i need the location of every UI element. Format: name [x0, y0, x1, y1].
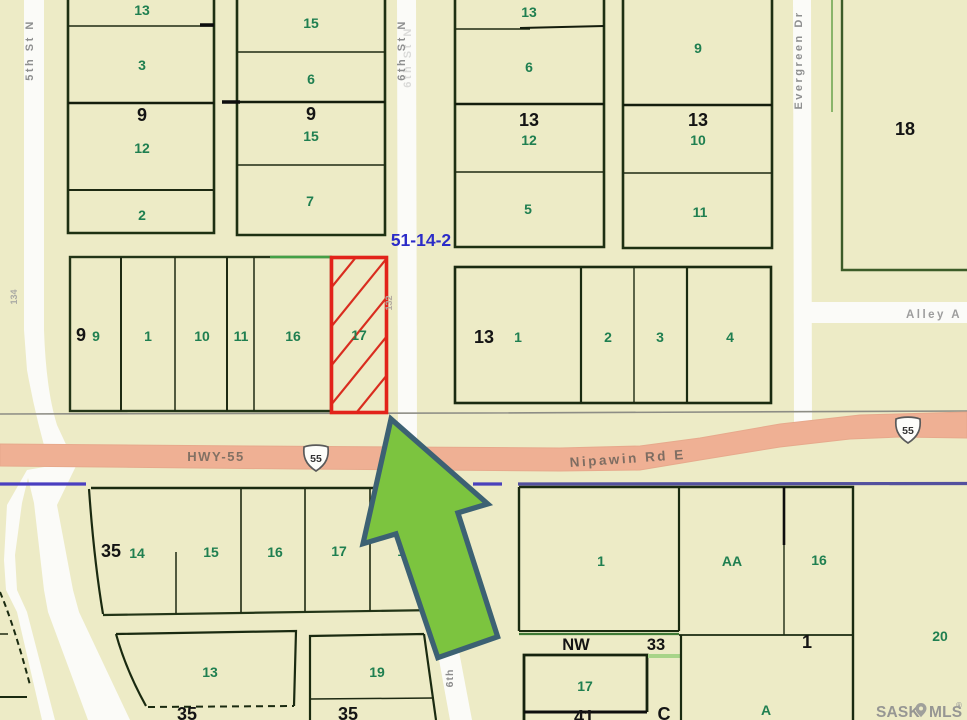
svg-text:17: 17 [331, 543, 347, 559]
svg-text:19: 19 [369, 664, 385, 680]
svg-text:3: 3 [138, 57, 146, 73]
svg-text:13: 13 [202, 664, 218, 680]
svg-text:41: 41 [574, 707, 594, 720]
svg-text:7: 7 [306, 193, 314, 209]
svg-text:11: 11 [693, 204, 708, 220]
svg-text:10: 10 [194, 328, 210, 344]
svg-text:15: 15 [203, 544, 219, 560]
svg-text:20: 20 [932, 628, 948, 644]
svg-text:16: 16 [811, 552, 827, 568]
svg-text:1: 1 [514, 329, 522, 345]
svg-text:6: 6 [525, 59, 533, 75]
svg-text:51-14-2: 51-14-2 [391, 230, 452, 250]
svg-text:33: 33 [647, 636, 665, 654]
svg-text:2: 2 [604, 329, 612, 345]
svg-text:®: ® [956, 701, 962, 710]
svg-text:AA: AA [722, 553, 742, 569]
svg-text:Evergreen Dr: Evergreen Dr [793, 10, 805, 109]
svg-text:13: 13 [519, 110, 539, 130]
svg-text:55: 55 [902, 425, 914, 437]
svg-text:14: 14 [129, 545, 145, 561]
svg-text:35: 35 [101, 541, 121, 561]
svg-text:NW: NW [562, 636, 590, 654]
svg-text:18: 18 [895, 119, 915, 139]
svg-text:5th St N: 5th St N [24, 19, 36, 81]
svg-text:17: 17 [577, 678, 593, 694]
svg-text:17: 17 [351, 327, 367, 343]
svg-text:SASK: SASK [876, 704, 920, 720]
svg-text:35: 35 [338, 704, 358, 720]
svg-text:13: 13 [134, 2, 150, 18]
svg-text:3: 3 [656, 329, 664, 345]
svg-text:1: 1 [802, 632, 812, 652]
svg-text:13: 13 [688, 110, 708, 130]
svg-text:134: 134 [9, 289, 19, 304]
svg-text:15: 15 [303, 15, 319, 31]
svg-text:16: 16 [267, 544, 283, 560]
svg-text:13: 13 [521, 4, 537, 20]
svg-text:C: C [658, 704, 671, 720]
svg-text:1: 1 [144, 328, 152, 344]
svg-text:1: 1 [597, 553, 605, 569]
svg-text:10: 10 [690, 132, 706, 148]
svg-text:132: 132 [384, 295, 394, 310]
svg-text:4: 4 [726, 329, 734, 345]
svg-text:15: 15 [303, 128, 319, 144]
svg-text:HWY-55: HWY-55 [187, 449, 244, 464]
svg-text:6th St N: 6th St N [396, 19, 408, 81]
svg-text:35: 35 [177, 704, 197, 720]
svg-text:5: 5 [524, 201, 532, 217]
svg-text:16: 16 [285, 328, 301, 344]
svg-text:11: 11 [234, 328, 249, 344]
svg-text:A: A [761, 702, 771, 718]
svg-text:6: 6 [307, 71, 315, 87]
svg-text:9: 9 [92, 328, 100, 344]
svg-text:Alley A: Alley A [906, 309, 962, 321]
svg-text:12: 12 [134, 140, 150, 156]
svg-text:13: 13 [474, 327, 494, 347]
svg-text:2: 2 [138, 207, 146, 223]
svg-text:6th: 6th [444, 669, 456, 688]
svg-text:55: 55 [310, 453, 322, 465]
svg-text:9: 9 [137, 105, 147, 125]
svg-text:9: 9 [306, 104, 316, 124]
svg-text:12: 12 [521, 132, 537, 148]
svg-text:9: 9 [694, 40, 702, 56]
svg-text:9: 9 [76, 325, 86, 345]
